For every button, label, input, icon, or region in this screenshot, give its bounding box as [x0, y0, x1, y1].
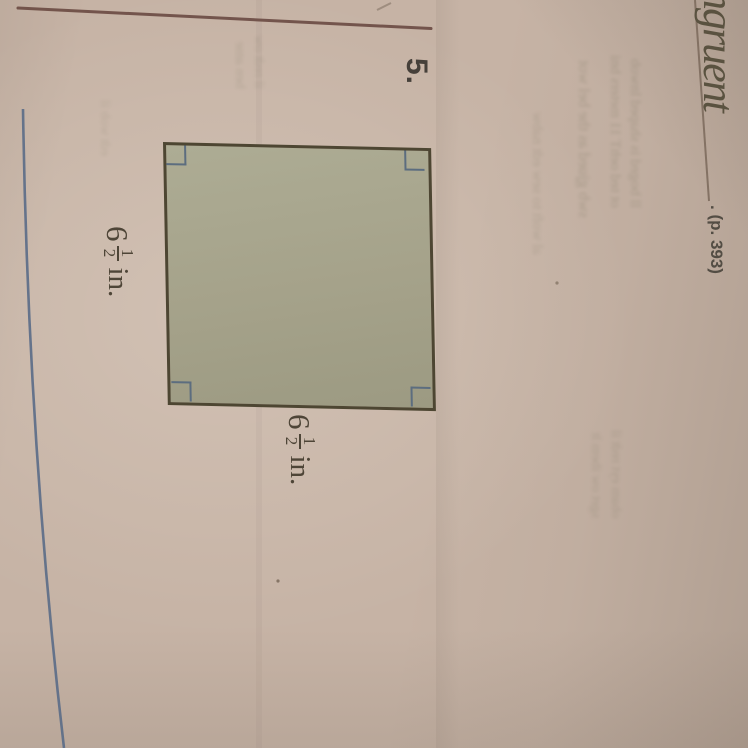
bleed-through-text: edt wob il	[96, 100, 112, 242]
worksheet-photo: ll boged is shaped lnwob ot ted oehT 11 …	[0, 0, 748, 748]
fraction: 1 2	[284, 434, 316, 449]
bleed-through-text: obam eyt redt il sget ow ibem lt	[585, 430, 625, 745]
fraction-numerator: 1	[302, 437, 316, 446]
fraction: 1 2	[102, 246, 134, 261]
right-angle-mark-bottom-left	[171, 381, 191, 401]
page-reference: . (p. 393)	[700, 205, 726, 301]
unit-label: in.	[104, 268, 133, 298]
ruled-line-top	[18, 8, 431, 29]
problem-number-label: 5.	[397, 58, 433, 100]
bleed-through-text: ll boged is shaped lnwob ot ted oehT 11 …	[605, 55, 645, 455]
dust-speck	[276, 579, 279, 582]
bleed-through-text: swb gjued as the bel wot	[574, 60, 592, 400]
side-length-label-left: 6 1 2 in.	[95, 226, 141, 332]
unit-label: in.	[286, 456, 315, 486]
fraction-numerator: 1	[120, 249, 134, 258]
bleed-through-text: al woft to sew edt nabw	[528, 112, 545, 374]
notebook-edge-line	[23, 109, 64, 748]
handwritten-answer: ngruent	[648, 0, 744, 160]
pencil-mark	[377, 3, 391, 10]
side-length-label-bottom: 6 1 2 in.	[278, 414, 322, 510]
dust-speck	[555, 281, 558, 284]
bleed-through-text: il redt ow ben ame	[230, 35, 268, 147]
fraction-denominator: 2	[102, 249, 116, 258]
right-angle-mark-top-left	[166, 145, 186, 165]
fraction-denominator: 2	[284, 437, 298, 446]
right-angle-mark-top-right	[404, 150, 424, 170]
right-angle-mark-bottom-right	[410, 387, 430, 407]
page-crease	[436, 0, 470, 748]
whole-number: 6	[285, 414, 316, 430]
square-figure	[163, 142, 436, 411]
whole-number: 6	[103, 226, 134, 242]
